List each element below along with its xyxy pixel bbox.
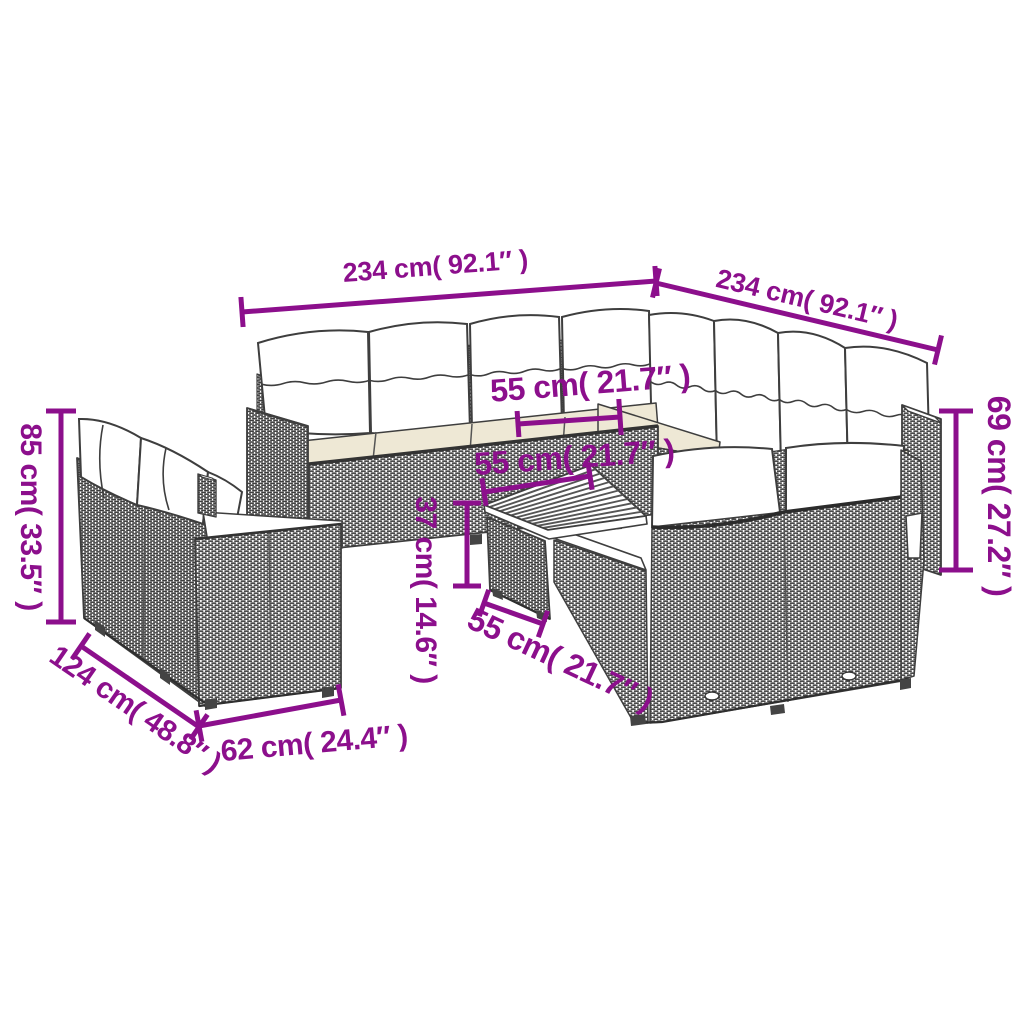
svg-text:85 cm( 33.5″ ): 85 cm( 33.5″ ) xyxy=(14,423,47,610)
svg-text:69 cm( 27.2″ ): 69 cm( 27.2″ ) xyxy=(981,396,1017,596)
svg-text:37 cm( 14.6″ ): 37 cm( 14.6″ ) xyxy=(409,496,442,683)
